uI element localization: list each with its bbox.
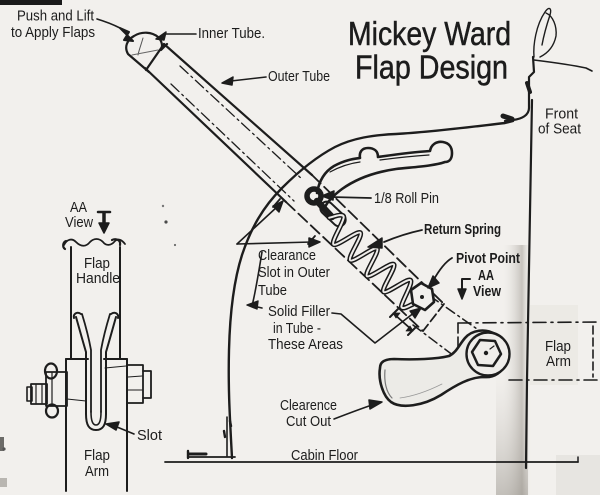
svg-text:of Seat: of Seat [538, 122, 581, 138]
svg-text:to Apply Flaps: to Apply Flaps [11, 25, 95, 41]
svg-text:View: View [473, 284, 502, 300]
svg-text:Cut Out: Cut Out [286, 414, 331, 430]
svg-text:Handle: Handle [76, 271, 120, 287]
svg-text:Clearence: Clearence [280, 398, 337, 414]
svg-text:Solid Filler: Solid Filler [268, 304, 330, 320]
svg-text:AA: AA [70, 200, 87, 216]
svg-text:Flap Design: Flap Design [355, 50, 508, 87]
svg-text:1/8 Roll Pin: 1/8 Roll Pin [374, 191, 439, 207]
svg-text:Arm: Arm [546, 354, 571, 370]
svg-text:Outer Tube: Outer Tube [268, 69, 330, 85]
svg-text:in Tube -: in Tube - [273, 321, 321, 337]
svg-text:Clearance: Clearance [258, 248, 316, 264]
svg-text:Return Spring: Return Spring [424, 222, 501, 238]
svg-text:Inner Tube.: Inner Tube. [198, 26, 265, 42]
svg-text:Flap: Flap [545, 339, 571, 355]
svg-text:Arm: Arm [85, 464, 109, 480]
svg-text:Cabin Floor: Cabin Floor [291, 448, 358, 464]
svg-text:View: View [65, 215, 93, 231]
svg-text:Tube: Tube [258, 283, 287, 299]
svg-text:Front: Front [545, 107, 578, 123]
svg-text:Slot in Outer: Slot in Outer [258, 265, 330, 281]
svg-text:Flap: Flap [84, 256, 110, 272]
svg-text:AA: AA [478, 268, 494, 284]
svg-text:Slot: Slot [137, 428, 162, 444]
svg-text:Flap: Flap [84, 448, 110, 464]
svg-text:Mickey Ward: Mickey Ward [348, 16, 511, 53]
svg-text:Pivot Point: Pivot Point [456, 251, 520, 267]
svg-text:Push and Lift: Push and Lift [17, 9, 94, 25]
svg-text:These Areas: These Areas [268, 337, 343, 353]
